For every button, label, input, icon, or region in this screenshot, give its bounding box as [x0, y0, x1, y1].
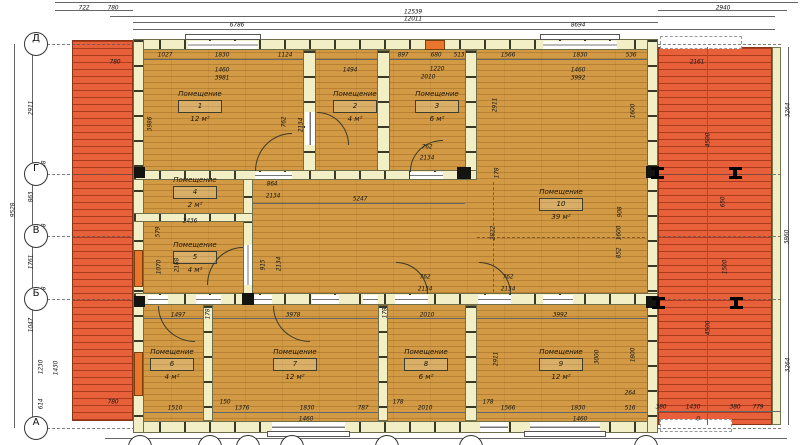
steel-column-icon	[730, 297, 743, 309]
floor-plan[interactable]: Помещение112 м²Помещение24 м²Помещение36…	[0, 0, 800, 445]
columns-layer	[0, 0, 800, 445]
steel-column-icon	[652, 297, 665, 309]
steel-column-icon	[729, 167, 742, 179]
steel-column-icon	[651, 167, 664, 179]
